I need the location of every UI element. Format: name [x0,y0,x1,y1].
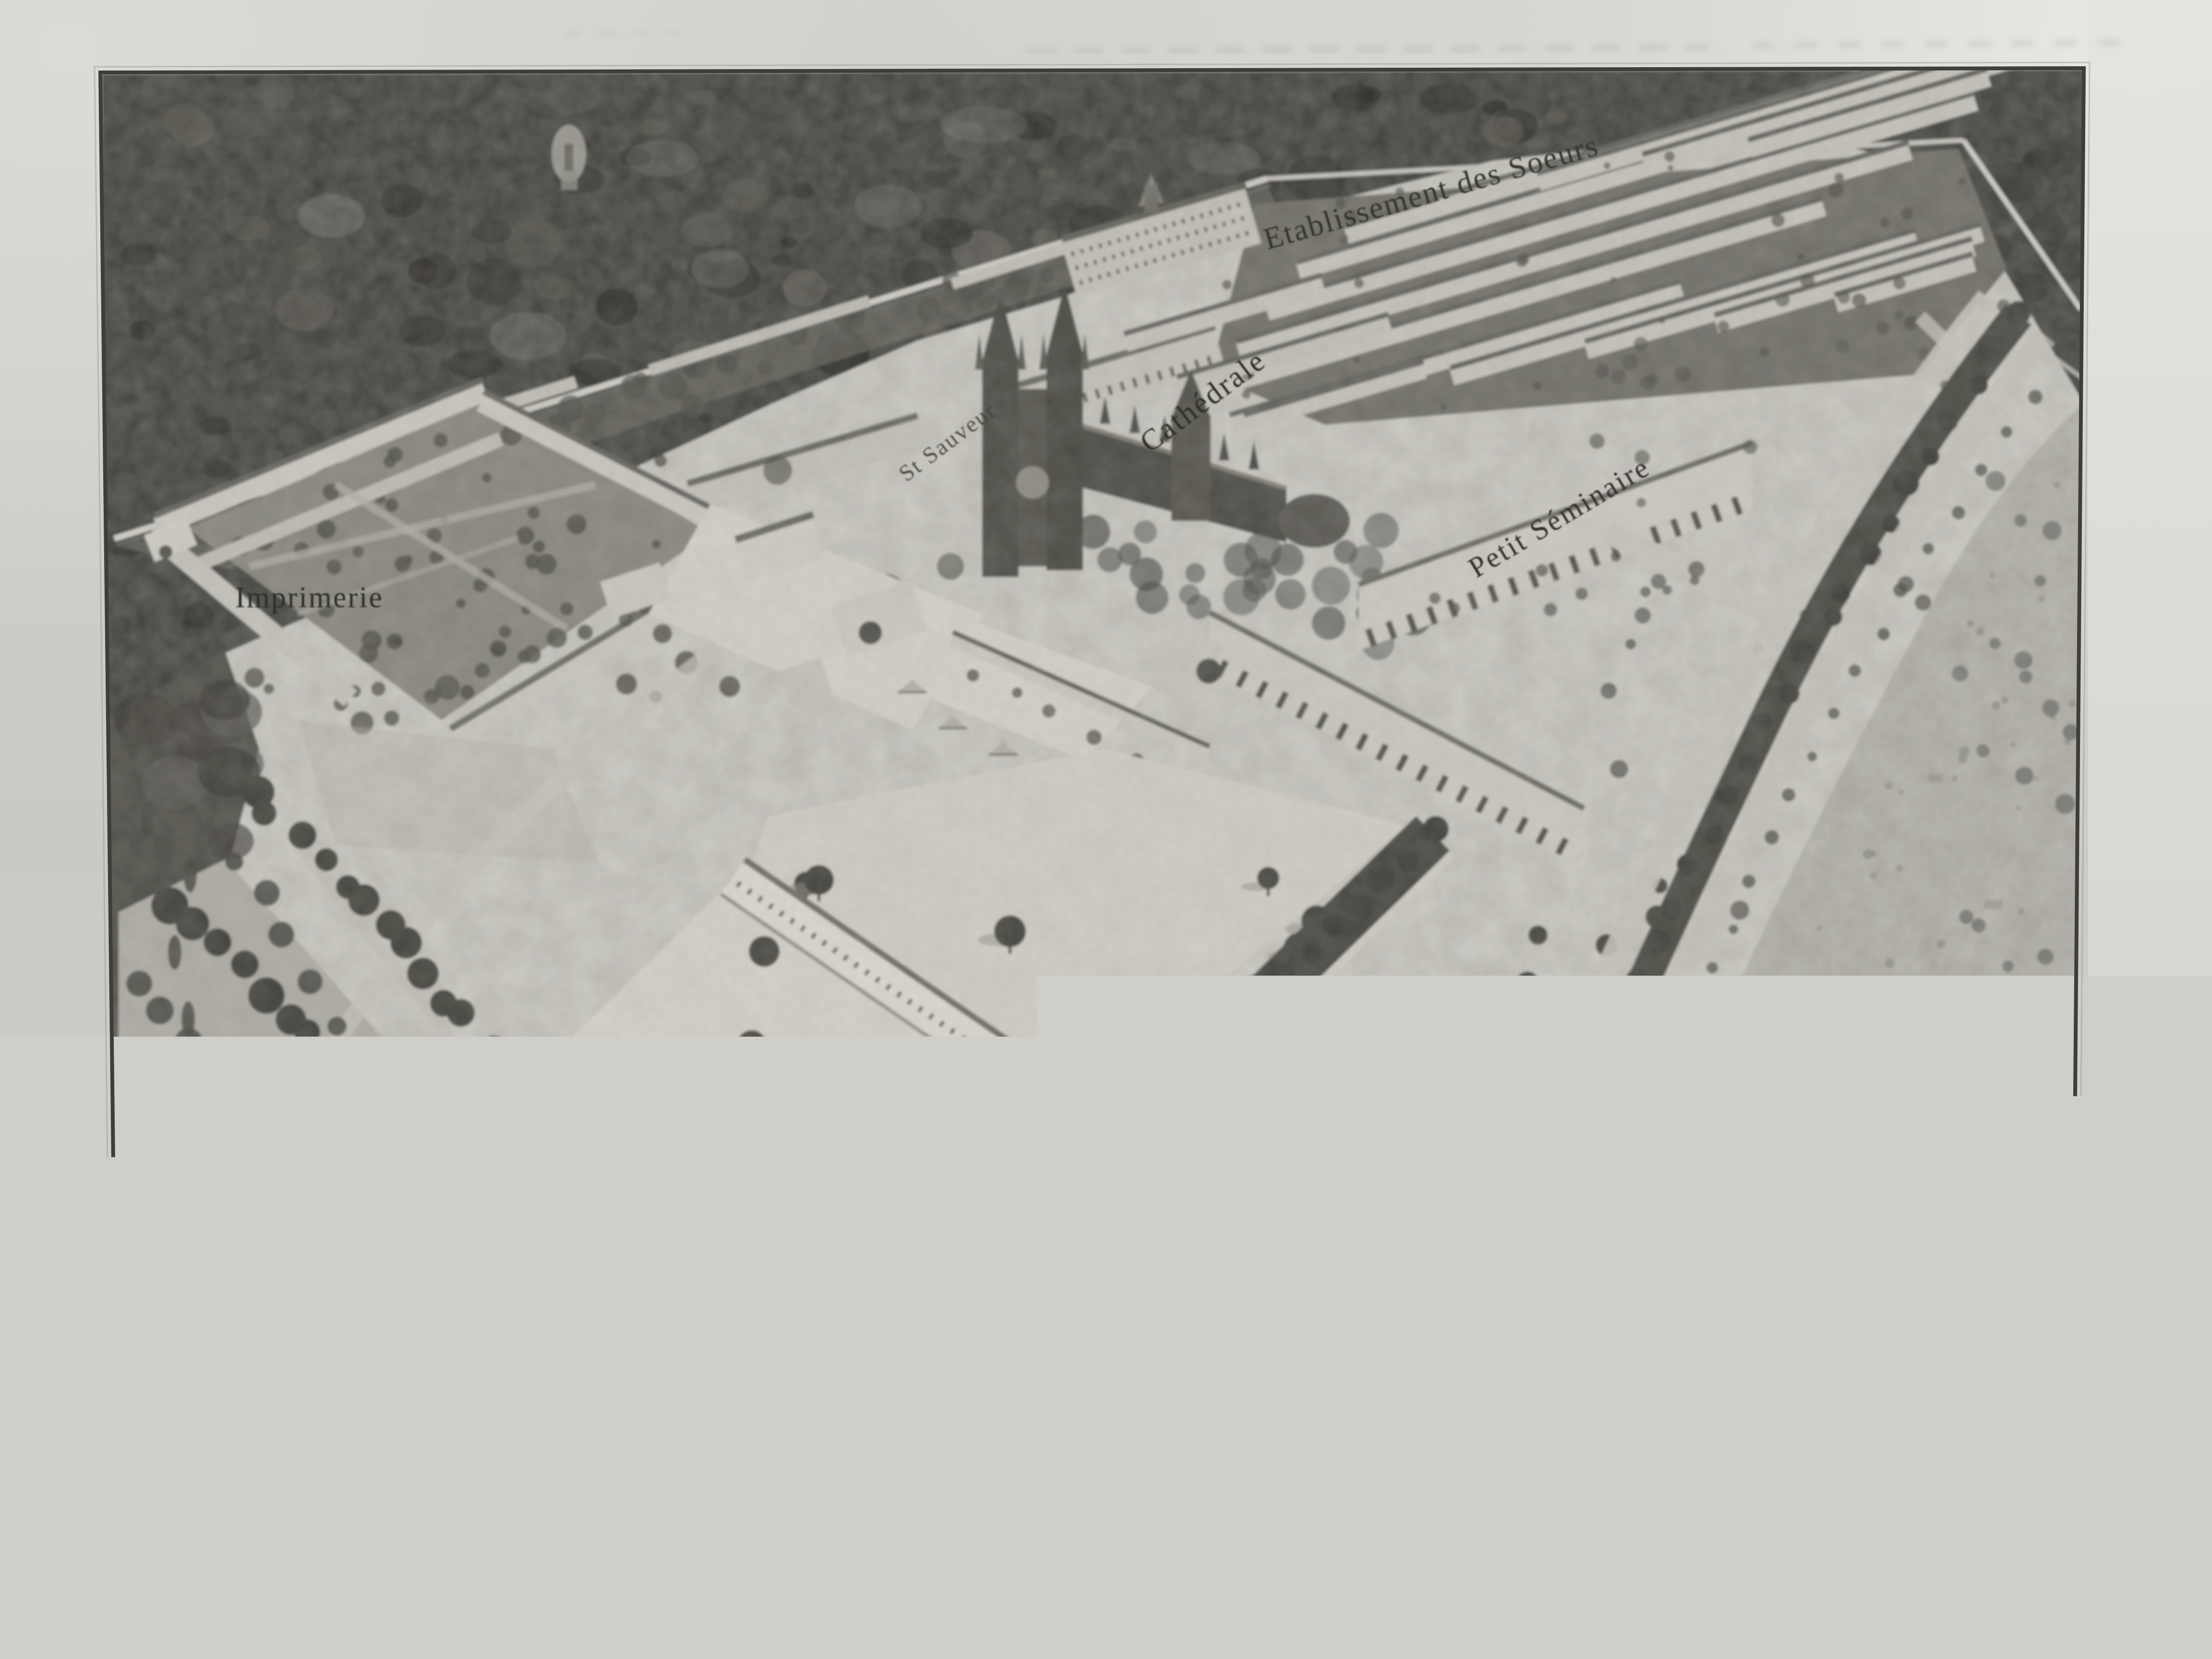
svg-text:Maïson-mère: Maïson-mère [274,1313,443,1345]
svg-text:des Joséphines: des Joséphines [253,1363,444,1395]
svg-text:Maisons des: Maisons des [1531,1231,1695,1263]
svg-text:LE PÉTANG A VOL D’OISEAU.: LE PÉTANG A VOL D’OISEAU. [860,1507,1306,1546]
svg-text:Imprimerie: Imprimerie [235,581,384,614]
svg-text:Ecole primaire: Ecole primaire [540,968,736,1000]
svg-text:Chrétiens: Chrétiens [1553,1284,1680,1316]
svg-text:Grand Séminaire: Grand Séminaire [1032,696,1276,731]
